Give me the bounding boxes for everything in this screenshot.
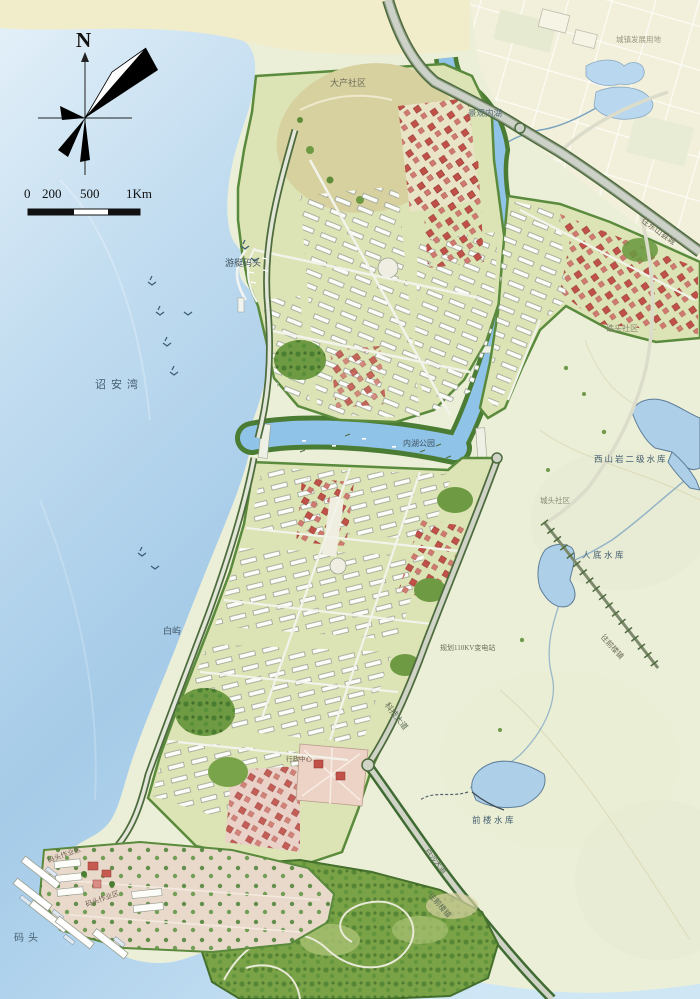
label-planned-substation: 规划110KV变电站 [440,645,495,652]
label-chengtou-community: 城头社区 [540,497,570,505]
label-wharf: 码头 [14,934,42,944]
label-qianlou-reservoir: 前楼水库 [472,816,516,825]
scale-bar [28,209,140,215]
label-civic-center: 行政中心 [286,757,312,764]
scale-tick-1km: 1Km [126,186,152,202]
label-zhaoan-bay: 诏安湾 [95,380,143,391]
scale-tick-200: 200 [42,186,62,202]
label-inner-lake-park: 内湖公园 [403,440,435,448]
label-xishanyan-reservoir: 西山岩二级水库 [594,455,668,464]
label-rendi-reservoir: 人底水库 [582,551,626,560]
scale-tick-500: 500 [80,186,100,202]
label-baiyu-islet: 白屿 [163,627,181,636]
map-artwork [0,0,700,999]
label-development-land: 城镇发展用地 [616,36,661,44]
scale-tick-0: 0 [24,186,31,202]
scale-bar-ticks: 0 200 500 1Km [0,186,200,202]
label-yacht-marina: 游艇码头 [225,259,261,268]
pond-north [586,60,644,86]
label-scenic-inner-lake: 景观内湖 [468,109,502,118]
label-jiaotou-community: 礁头社区 [606,325,638,333]
label-dachan-community: 大产社区 [330,79,366,88]
master-plan-map: N 0 200 500 1Km 大产社区 景观内湖 城镇发展用地 往东山县城 礁… [0,0,700,999]
compass-north-label: N [76,28,91,53]
